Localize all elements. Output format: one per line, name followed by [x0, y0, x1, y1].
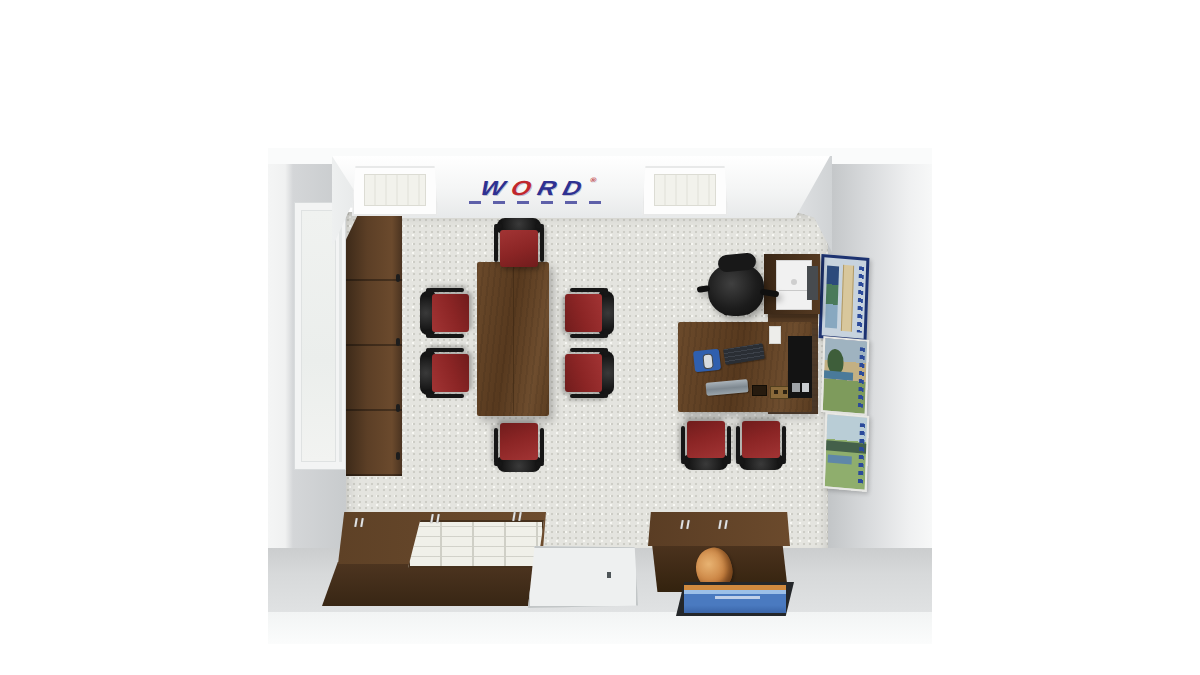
chair-armrest: [540, 428, 544, 464]
registered-mark: ®: [590, 177, 598, 184]
chair-seat: [565, 294, 602, 332]
conference-chair-west-2: [420, 350, 474, 396]
desk-hutch: [764, 254, 820, 314]
credenza-handles: [512, 512, 524, 521]
floor-mat-logo: [607, 572, 611, 578]
poster-lake-landscape: [823, 412, 870, 492]
chair-armrest: [727, 426, 731, 462]
desk-electronics: [788, 336, 812, 398]
poster-artwork: [828, 455, 852, 464]
chair-armrest: [570, 348, 606, 352]
poster-vertical-text: [857, 266, 864, 332]
ceiling-light-left: [352, 166, 438, 216]
mouse-pad: [693, 349, 721, 373]
conference-chair-east-1: [560, 290, 614, 336]
office-chair-seat: [708, 264, 764, 316]
chair-armrest: [494, 226, 498, 262]
conference-table: [477, 262, 549, 416]
floor-mat: [528, 546, 638, 608]
chair-armrest: [782, 426, 786, 462]
chair-seat: [500, 423, 538, 460]
chair-armrest: [494, 428, 498, 464]
hutch-side-unit: [807, 266, 818, 300]
chair-armrest: [428, 348, 464, 352]
chair-seat: [500, 230, 538, 267]
poster-artwork: [825, 265, 839, 328]
window: [294, 202, 346, 470]
chair-armrest: [681, 426, 685, 462]
chair-armrest: [428, 334, 464, 338]
tall-storage-cabinet: [346, 216, 402, 476]
ceiling-light-right: [642, 166, 728, 216]
brand-logo-text: WORD®: [478, 177, 597, 201]
cable-grommet: [752, 385, 767, 396]
poster-vertical-text: [858, 347, 865, 408]
poster-artwork: [841, 265, 854, 331]
conference-chair-west-1: [420, 290, 474, 336]
mouse: [702, 353, 714, 369]
poster-blue-monument: [819, 254, 870, 342]
office-chair: [700, 254, 772, 324]
poster-vertical-text: [858, 423, 865, 484]
credenza-handles: [354, 518, 366, 527]
cabinet-handle: [396, 274, 400, 282]
credenza-handles: [718, 520, 730, 529]
cabinet-handle: [396, 338, 400, 346]
chair-seat: [432, 294, 469, 332]
chair-armrest: [428, 288, 464, 292]
office-3d-render: WORD®: [0, 0, 1200, 675]
cabinet-handle: [396, 452, 400, 460]
chair-seat: [565, 354, 602, 392]
chair-seat: [742, 421, 780, 458]
guest-chair-1: [683, 416, 729, 470]
credenza-handles: [430, 514, 442, 523]
chair-armrest: [570, 334, 606, 338]
conference-chair-east-2: [560, 350, 614, 396]
chair-armrest: [540, 226, 544, 262]
credenza-front: [322, 562, 548, 606]
chair-armrest: [428, 394, 464, 398]
credenza-left: [322, 512, 550, 606]
paper-slip: [769, 326, 781, 344]
chair-armrest: [570, 394, 606, 398]
poster-green-landscape: [821, 336, 870, 416]
window-mullion: [339, 210, 342, 462]
cabinet-handle: [396, 404, 400, 412]
guest-chair-2: [738, 416, 784, 470]
chair-armrest: [570, 288, 606, 292]
bottom-wall: [268, 612, 932, 644]
logo-tagline: [469, 201, 607, 204]
window-pane: [301, 210, 336, 462]
wall-tv: [676, 582, 794, 616]
credenza-right: [648, 512, 790, 592]
logo-letter-d: D: [561, 177, 592, 200]
chair-seat: [432, 354, 469, 392]
chair-armrest: [736, 426, 740, 462]
chair-seat: [687, 421, 725, 458]
conference-chair-north: [496, 218, 542, 272]
credenza-handles: [680, 520, 692, 529]
literature-organizer: [408, 520, 544, 568]
brand-logo: WORD®: [440, 174, 636, 206]
ceiling-light-diffuser: [364, 174, 426, 206]
tv-screen: [684, 585, 786, 613]
conference-chair-south: [496, 418, 542, 472]
ceiling-light-diffuser: [654, 174, 716, 206]
poster-artwork: [824, 370, 854, 381]
